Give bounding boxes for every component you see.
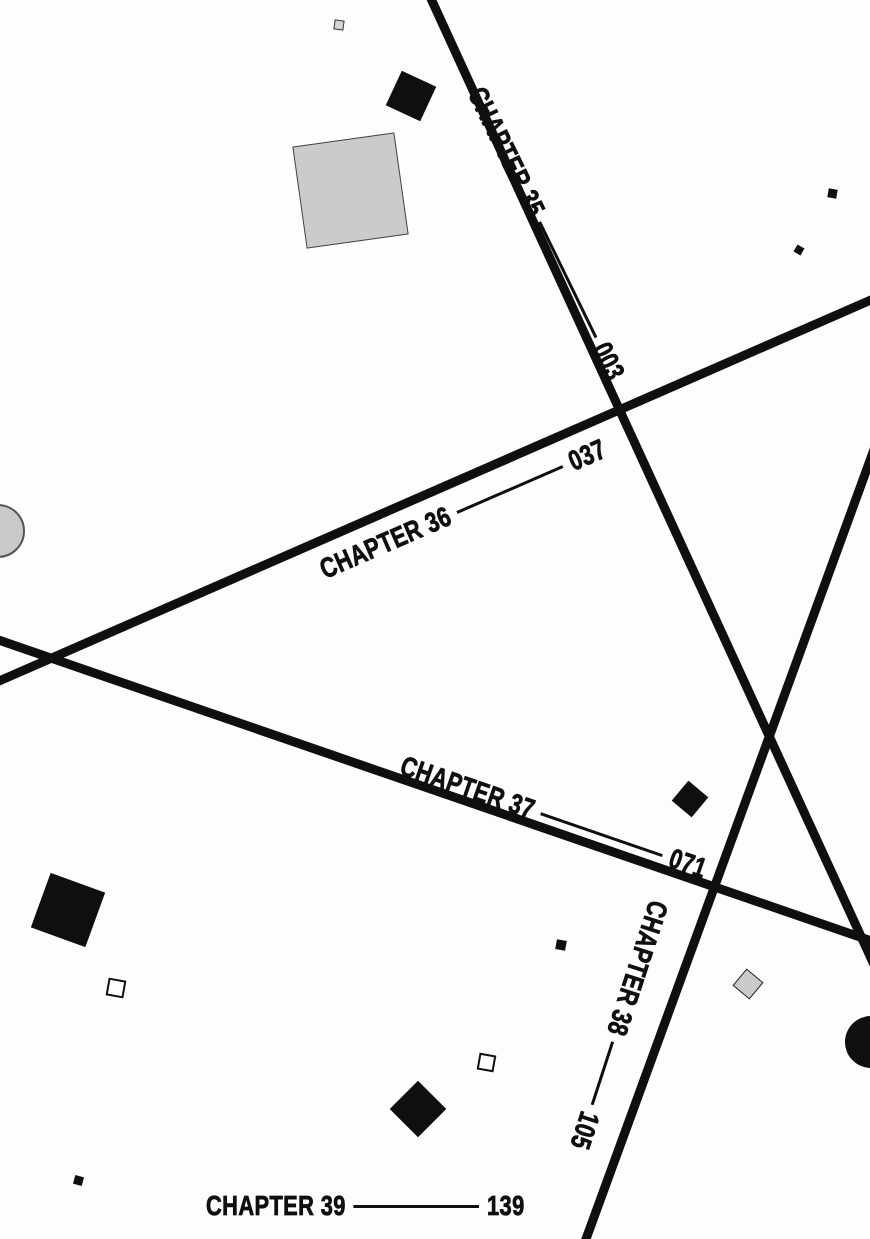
manga-toc-page: CHAPTER 35 003 CHAPTER 36 037 CHAPTER 37… [0,0,870,1239]
chapter-35-leader-line [539,221,598,338]
chapter-36-label: CHAPTER 36 [316,502,455,583]
toc-entry-chapter-35: CHAPTER 35 003 [463,83,629,384]
chapter-36-leader-line [456,465,563,514]
chapter-38-page-number: 105 [565,1108,603,1152]
toc-entry-chapter-36: CHAPTER 36 037 [316,435,610,584]
chapter-39-label: CHAPTER 39 [206,1192,346,1220]
chapter-35-page-number: 003 [587,338,629,384]
chapter-37-leader-line [541,812,664,857]
toc-entries-layer: CHAPTER 35 003 CHAPTER 36 037 CHAPTER 37… [0,0,870,1239]
chapter-37-page-number: 071 [666,845,711,884]
chapter-36-page-number: 037 [564,435,610,476]
toc-entry-chapter-39: CHAPTER 39 139 [206,1192,525,1220]
toc-entry-chapter-38: CHAPTER 38 105 [565,897,672,1152]
chapter-39-leader-line [354,1205,480,1208]
chapter-38-label: CHAPTER 38 [602,897,672,1039]
chapter-38-leader-line [591,1042,614,1106]
chapter-37-label: CHAPTER 37 [397,752,538,824]
chapter-39-page-number: 139 [487,1192,525,1220]
toc-entry-chapter-37: CHAPTER 37 071 [397,752,710,883]
chapter-35-label: CHAPTER 35 [463,83,549,221]
